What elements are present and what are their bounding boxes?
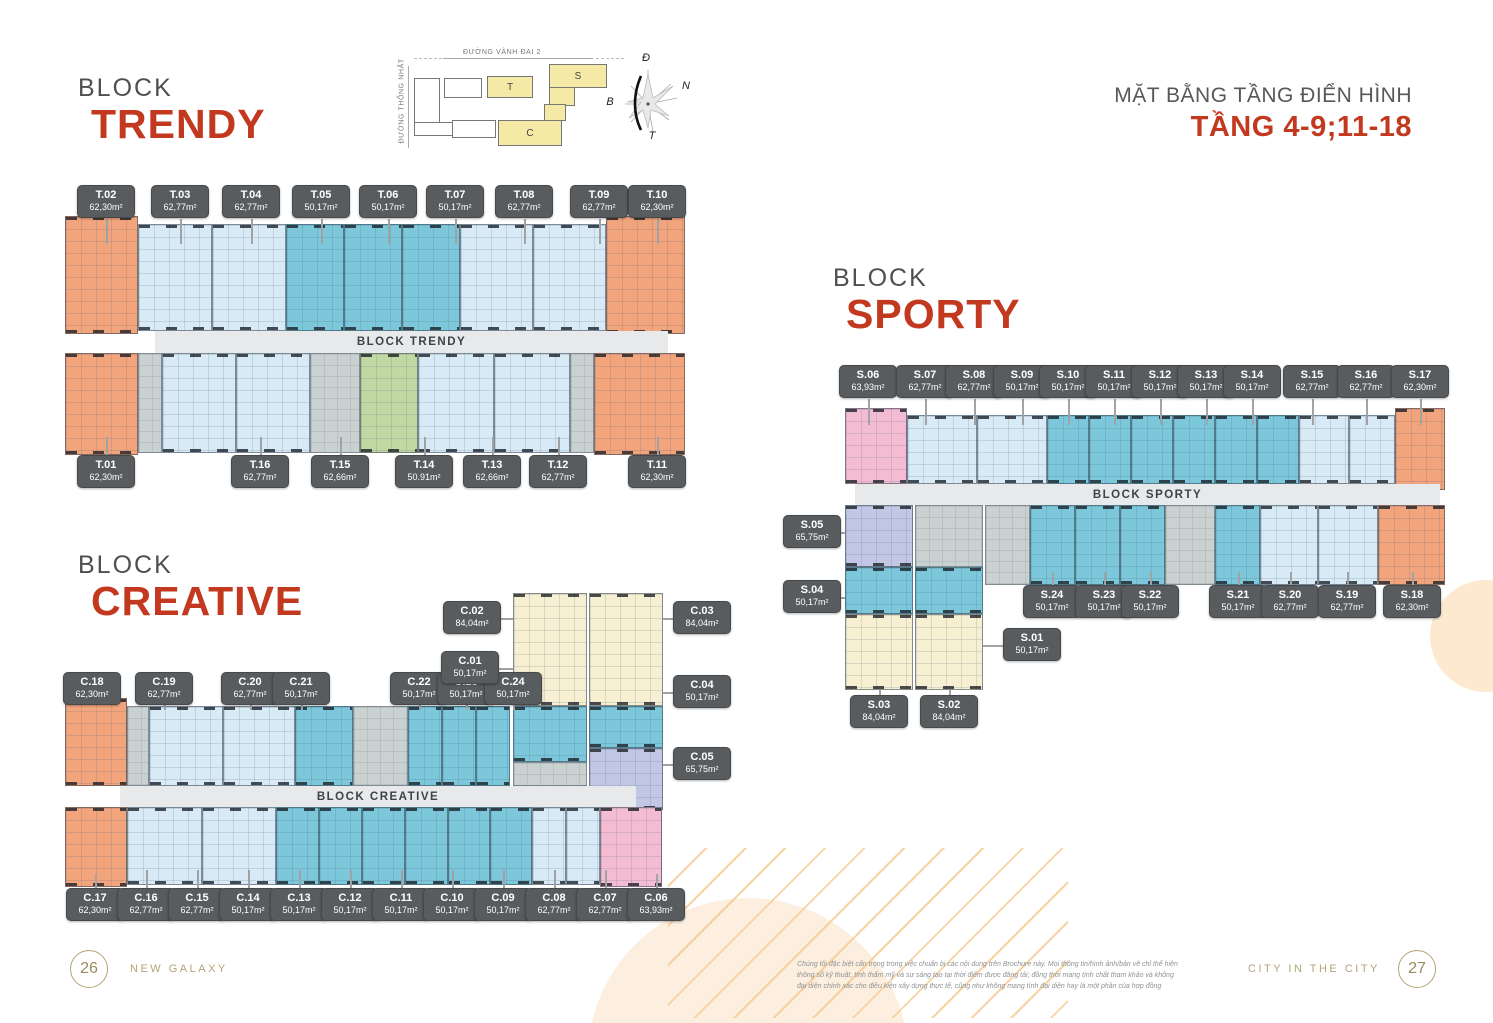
site-map-road-left (408, 66, 409, 148)
unit-code: S.18 (1384, 589, 1440, 602)
unit-area: 62,77m² (232, 472, 288, 483)
leader-line (605, 870, 607, 888)
unit-area: 62,77m² (118, 905, 174, 916)
unit-area: 62,30m² (629, 472, 685, 483)
unit-area: 62,77m² (152, 202, 208, 213)
unit-cell-creative (589, 593, 663, 706)
unit-code: C.04 (674, 679, 730, 692)
unit-cell-sporty (1089, 415, 1131, 484)
unit-area: 50,17m² (220, 905, 276, 916)
unit-cell-trendy (594, 353, 685, 455)
leader-line (350, 870, 352, 888)
unit-cell-creative (65, 698, 127, 786)
unit-label-C.21: C.2150,17m² (272, 672, 330, 705)
unit-code: T.07 (427, 189, 483, 202)
leader-line (1052, 572, 1054, 585)
block-creative-label: BLOCK (78, 551, 303, 580)
compass-south-label: T (649, 130, 656, 142)
core-creative (513, 762, 587, 786)
unit-area: 84,04m² (851, 712, 907, 723)
unit-area: 50,17m² (424, 905, 480, 916)
unit-cell-trendy (344, 224, 402, 331)
block-sporty-name: SPORTY (846, 291, 1021, 338)
unit-code: S.20 (1262, 589, 1318, 602)
unit-area: 50,17m² (1210, 602, 1266, 613)
leader-line (299, 870, 301, 888)
block-creative-title: BLOCK CREATIVE (78, 551, 303, 625)
compass-east-label: Đ (642, 52, 650, 64)
unit-cell-trendy (138, 224, 212, 331)
page-number-left: 26 (70, 950, 108, 988)
unit-area: 50,17m² (784, 597, 840, 608)
unit-code: C.01 (442, 655, 498, 668)
unit-label-C.06: C.0663,93m² (627, 888, 685, 921)
brand-right: CITY IN THE CITY (1248, 963, 1380, 975)
unit-label-C.18: C.1862,30m² (63, 672, 121, 705)
unit-area: 50,17m² (1224, 382, 1280, 393)
core-trendy (570, 353, 594, 453)
unit-code: C.15 (169, 892, 225, 905)
unit-label-S.05: S.0565,75m² (783, 515, 841, 548)
leader-line (251, 219, 253, 244)
page-number-right: 27 (1398, 950, 1436, 988)
leader-line (558, 437, 560, 455)
leader-line (1347, 572, 1349, 585)
unit-label-C.20: C.2062,77m² (221, 672, 279, 705)
unit-cell-sporty (845, 408, 907, 484)
unit-area: 63,93m² (840, 382, 896, 393)
unit-area: 62,77m² (222, 689, 278, 700)
leader-line (1114, 399, 1116, 425)
unit-cell-creative (362, 807, 405, 885)
unit-cell-creative (127, 807, 202, 885)
unit-code: T.09 (571, 189, 627, 202)
unit-label-C.03: C.0384,04m² (673, 601, 731, 634)
unit-cell-creative (149, 706, 223, 786)
leader-line (146, 870, 148, 888)
unit-code: C.12 (322, 892, 378, 905)
unit-label-T.14: T.1450.91m² (395, 455, 453, 488)
unit-label-C.08: C.0862,77m² (525, 888, 583, 921)
unit-label-T.02: T.0262,30m² (77, 185, 135, 218)
leader-line (401, 870, 403, 888)
unit-code: S.05 (784, 519, 840, 532)
core-sporty (915, 505, 983, 567)
block-sporty-title: BLOCK SPORTY (833, 264, 1021, 338)
unit-area: 62,30m² (78, 202, 134, 213)
unit-code: T.10 (629, 189, 685, 202)
compass-icon (615, 64, 685, 138)
block-trendy-title: BLOCK TRENDY (78, 74, 266, 148)
block-creative-name: CREATIVE (91, 578, 303, 625)
unit-label-T.09: T.0962,77m² (570, 185, 628, 218)
unit-label-C.15: C.1562,77m² (168, 888, 226, 921)
unit-area: 62,77m² (526, 905, 582, 916)
unit-area: 62,77m² (496, 202, 552, 213)
unit-area: 65,75m² (784, 532, 840, 543)
unit-code: T.15 (312, 459, 368, 472)
unit-cell-trendy (418, 353, 494, 453)
unit-cell-sporty (845, 614, 913, 690)
core-trendy (310, 353, 360, 453)
leader-line (452, 870, 454, 888)
leader-line (1238, 572, 1240, 585)
block-sporty-label: BLOCK (833, 264, 1021, 293)
leader-line (983, 645, 1004, 647)
unit-code: C.06 (628, 892, 684, 905)
unit-code: T.08 (496, 189, 552, 202)
unit-cell-trendy (236, 353, 310, 453)
page-title-line1: MẶT BẰNG TẦNG ĐIỂN HÌNH (1114, 84, 1412, 108)
unit-area: 84,04m² (921, 712, 977, 723)
core-sporty (1165, 505, 1215, 585)
leader-line (388, 219, 390, 244)
unit-label-T.01: T.0162,30m² (77, 455, 135, 488)
leader-line (1420, 399, 1422, 425)
unit-label-C.13: C.1350,17m² (270, 888, 328, 921)
unit-cell-trendy (65, 216, 138, 334)
corridor-sporty: BLOCK SPORTY (855, 484, 1440, 505)
unit-label-S.03: S.0384,04m² (850, 695, 908, 728)
unit-label-T.03: T.0362,77m² (151, 185, 209, 218)
leader-line (524, 219, 526, 244)
unit-area: 65,75m² (674, 764, 730, 775)
unit-cell-trendy (460, 224, 533, 331)
unit-code: C.02 (444, 605, 500, 618)
unit-code: S.04 (784, 584, 840, 597)
leader-line (497, 668, 513, 670)
unit-code: S.17 (1392, 369, 1448, 382)
unit-area: 62,66m² (464, 472, 520, 483)
corridor-trendy: BLOCK TRENDY (155, 331, 668, 353)
unit-cell-creative (202, 807, 276, 885)
unit-label-C.05: C.0565,75m² (673, 747, 731, 780)
unit-code: C.17 (67, 892, 123, 905)
leader-line (868, 399, 870, 425)
site-map-road-top (443, 58, 593, 59)
leader-line (1312, 399, 1314, 425)
site-map-building (444, 78, 482, 98)
unit-code: S.02 (921, 699, 977, 712)
unit-code: S.21 (1210, 589, 1266, 602)
unit-cell-sporty (977, 415, 1047, 484)
site-map-block-c-tab (544, 104, 566, 121)
leader-line (1104, 572, 1106, 585)
unit-label-C.11: C.1150,17m² (372, 888, 430, 921)
unit-area: 84,04m² (674, 618, 730, 629)
unit-area: 50,17m² (293, 202, 349, 213)
unit-code: T.14 (396, 459, 452, 472)
unit-cell-creative (600, 807, 662, 887)
unit-code: S.06 (840, 369, 896, 382)
leader-line (492, 437, 494, 455)
unit-area: 50,17m² (273, 689, 329, 700)
leader-line (657, 219, 659, 244)
unit-cell-sporty (1047, 415, 1089, 484)
leader-line (424, 437, 426, 455)
unit-cell-sporty (1257, 415, 1299, 484)
unit-code: T.16 (232, 459, 288, 472)
site-map-road-left-label: ĐƯỜNG THỐNG NHẤT (399, 64, 406, 144)
unit-cell-sporty (915, 614, 983, 690)
unit-label-S.16: S.1662,77m² (1337, 365, 1395, 398)
site-map-building (414, 122, 456, 136)
site-map-block-t: T (487, 76, 533, 98)
leader-line (455, 219, 457, 244)
unit-area: 84,04m² (444, 618, 500, 629)
unit-cell-sporty (1260, 505, 1318, 585)
unit-cell-creative (566, 807, 600, 885)
leader-line (1290, 572, 1292, 585)
unit-label-C.01: C.0150,17m² (441, 651, 499, 684)
unit-code: S.24 (1024, 589, 1080, 602)
unit-label-C.04: C.0450,17m² (673, 675, 731, 708)
unit-cell-sporty (1215, 415, 1257, 484)
unit-cell-trendy (162, 353, 236, 453)
unit-cell-creative (442, 706, 476, 786)
unit-label-S.21: S.2150,17m² (1209, 585, 1267, 618)
unit-label-T.10: T.1062,30m² (628, 185, 686, 218)
leader-line (1160, 399, 1162, 425)
leader-line (1366, 399, 1368, 425)
leader-line (260, 437, 262, 455)
unit-area: 62,77m² (1262, 602, 1318, 613)
unit-label-S.04: S.0450,17m² (783, 580, 841, 613)
compass-west-label: B (606, 96, 613, 108)
unit-code: S.15 (1284, 369, 1340, 382)
core-trendy (138, 353, 162, 453)
unit-area: 62,77m² (577, 905, 633, 916)
leader-line (499, 618, 513, 620)
unit-area: 62,77m² (530, 472, 586, 483)
core-creative (353, 706, 408, 786)
unit-code: C.20 (222, 676, 278, 689)
unit-cell-sporty (1173, 415, 1215, 484)
leader-line (248, 870, 250, 888)
unit-code: C.05 (674, 751, 730, 764)
leader-line (340, 437, 342, 455)
unit-code: T.11 (629, 459, 685, 472)
core-sporty (985, 505, 1030, 585)
unit-code: S.22 (1122, 589, 1178, 602)
unit-code: T.06 (360, 189, 416, 202)
unit-code: T.05 (293, 189, 349, 202)
unit-label-S.14: S.1450,17m² (1223, 365, 1281, 398)
unit-code: S.03 (851, 699, 907, 712)
unit-label-C.16: C.1662,77m² (117, 888, 175, 921)
unit-area: 50,17m² (674, 692, 730, 703)
leader-line (599, 219, 601, 244)
unit-label-T.06: T.0650,17m² (359, 185, 417, 218)
unit-label-S.18: S.1862,30m² (1383, 585, 1441, 618)
leader-line (106, 437, 108, 455)
unit-area: 50,17m² (442, 668, 498, 679)
unit-cell-sporty (1349, 415, 1395, 484)
unit-cell-trendy (286, 224, 344, 331)
unit-area: 50,17m² (1024, 602, 1080, 613)
compass-north-label: N (682, 80, 690, 92)
unit-label-C.10: C.1050,17m² (423, 888, 481, 921)
unit-area: 62,77m² (1284, 382, 1340, 393)
leader-line (503, 870, 505, 888)
unit-label-S.15: S.1562,77m² (1283, 365, 1341, 398)
unit-label-S.24: S.2450,17m² (1023, 585, 1081, 618)
brochure-page: BLOCK TRENDY BLOCK CREATIVE BLOCK SPORTY… (0, 0, 1493, 1023)
unit-area: 62,77m² (169, 905, 225, 916)
unit-cell-trendy (533, 224, 606, 331)
unit-code: S.14 (1224, 369, 1280, 382)
core-creative (127, 706, 149, 786)
unit-code: C.19 (136, 676, 192, 689)
leader-line (197, 870, 199, 888)
unit-cell-sporty (845, 505, 913, 567)
unit-area: 62,30m² (64, 689, 120, 700)
unit-cell-sporty (1299, 415, 1349, 484)
corridor-creative: BLOCK CREATIVE (120, 786, 636, 807)
unit-cell-sporty (1075, 505, 1120, 585)
unit-area: 50.91m² (396, 472, 452, 483)
unit-label-S.19: S.1962,77m² (1318, 585, 1376, 618)
unit-area: 50,17m² (485, 689, 541, 700)
leader-line (974, 399, 976, 425)
leader-line (106, 219, 108, 244)
site-map-building (452, 120, 496, 138)
unit-label-C.19: C.1962,77m² (135, 672, 193, 705)
block-trendy-label: BLOCK (78, 74, 266, 103)
unit-code: C.18 (64, 676, 120, 689)
leader-line (925, 399, 927, 425)
unit-area: 62,77m² (223, 202, 279, 213)
unit-area: 50,17m² (360, 202, 416, 213)
unit-area: 62,77m² (571, 202, 627, 213)
unit-area: 63,93m² (628, 905, 684, 916)
corridor-label-trendy: BLOCK TRENDY (357, 336, 466, 348)
unit-cell-sporty (915, 567, 983, 614)
unit-area: 62,30m² (1392, 382, 1448, 393)
unit-label-T.11: T.1162,30m² (628, 455, 686, 488)
leader-line (321, 219, 323, 244)
unit-code: T.01 (78, 459, 134, 472)
corridor-label-creative: BLOCK CREATIVE (317, 791, 439, 803)
unit-cell-trendy (402, 224, 460, 331)
unit-cell-creative (448, 807, 490, 885)
unit-label-C.07: C.0762,77m² (576, 888, 634, 921)
unit-cell-creative (276, 807, 319, 885)
unit-code: C.16 (118, 892, 174, 905)
unit-cell-creative (513, 706, 587, 762)
unit-cell-creative (532, 807, 566, 885)
unit-label-S.22: S.2250,17m² (1121, 585, 1179, 618)
unit-label-T.12: T.1262,77m² (529, 455, 587, 488)
unit-cell-creative (589, 706, 663, 748)
unit-label-S.01: S.0150,17m² (1003, 628, 1061, 661)
unit-label-S.20: S.2062,77m² (1261, 585, 1319, 618)
unit-cell-sporty (1120, 505, 1165, 585)
unit-label-C.12: C.1250,17m² (321, 888, 379, 921)
unit-code: T.13 (464, 459, 520, 472)
unit-label-T.05: T.0550,17m² (292, 185, 350, 218)
unit-label-C.17: C.1762,30m² (66, 888, 124, 921)
unit-cell-trendy (606, 216, 685, 334)
unit-area: 62,77m² (1319, 602, 1375, 613)
unit-label-T.13: T.1362,66m² (463, 455, 521, 488)
leader-line (1150, 572, 1152, 585)
unit-label-C.02: C.0284,04m² (443, 601, 501, 634)
unit-code: T.03 (152, 189, 208, 202)
unit-label-C.14: C.1450,17m² (219, 888, 277, 921)
disclaimer-text: Chúng tôi đặc biệt cẩn trọng trong việc … (797, 960, 1179, 993)
leader-line (656, 874, 658, 888)
unit-area: 62,30m² (78, 472, 134, 483)
unit-cell-creative (490, 807, 532, 885)
unit-cell-sporty (845, 567, 913, 614)
unit-label-S.17: S.1762,30m² (1391, 365, 1449, 398)
unit-area: 62,77m² (1338, 382, 1394, 393)
unit-area: 62,30m² (1384, 602, 1440, 613)
unit-cell-trendy (360, 353, 418, 453)
unit-label-T.16: T.1662,77m² (231, 455, 289, 488)
unit-code: S.16 (1338, 369, 1394, 382)
unit-label-T.07: T.0750,17m² (426, 185, 484, 218)
leader-line (95, 874, 97, 888)
unit-label-S.02: S.0284,04m² (920, 695, 978, 728)
unit-cell-trendy (65, 353, 138, 455)
leader-line (1206, 399, 1208, 425)
unit-area: 50,17m² (373, 905, 429, 916)
unit-cell-trendy (212, 224, 286, 331)
unit-cell-creative (476, 706, 510, 786)
unit-label-C.09: C.0950,17m² (474, 888, 532, 921)
leader-line (1068, 399, 1070, 425)
unit-code: T.04 (223, 189, 279, 202)
leader-line (180, 219, 182, 244)
unit-code: C.10 (424, 892, 480, 905)
unit-code: C.13 (271, 892, 327, 905)
unit-code: S.01 (1004, 632, 1060, 645)
unit-code: T.02 (78, 189, 134, 202)
unit-label-T.08: T.0862,77m² (495, 185, 553, 218)
leader-line (1412, 572, 1414, 585)
unit-code: C.11 (373, 892, 429, 905)
brand-left: NEW GALAXY (130, 963, 228, 975)
unit-area: 62,66m² (312, 472, 368, 483)
block-trendy-name: TRENDY (91, 101, 266, 148)
unit-area: 62,30m² (67, 905, 123, 916)
unit-area: 50,17m² (1122, 602, 1178, 613)
unit-cell-sporty (1131, 415, 1173, 484)
unit-area: 62,30m² (629, 202, 685, 213)
unit-cell-sporty (907, 415, 977, 484)
unit-area: 50,17m² (322, 905, 378, 916)
unit-label-S.06: S.0663,93m² (839, 365, 897, 398)
leader-line (554, 870, 556, 888)
unit-cell-creative (223, 706, 295, 786)
unit-code: C.21 (273, 676, 329, 689)
site-map-road-dash (414, 58, 442, 59)
unit-label-T.15: T.1562,66m² (311, 455, 369, 488)
unit-area: 62,77m² (136, 689, 192, 700)
leader-line (1252, 399, 1254, 425)
unit-area: 50,17m² (1004, 645, 1060, 656)
site-map-block-c: C (498, 120, 562, 146)
unit-code: C.08 (526, 892, 582, 905)
unit-code: S.19 (1319, 589, 1375, 602)
unit-cell-creative (295, 706, 353, 786)
unit-cell-creative (408, 706, 442, 786)
site-map-road-dash (596, 58, 624, 59)
unit-cell-creative (319, 807, 362, 885)
leader-line (1022, 399, 1024, 425)
